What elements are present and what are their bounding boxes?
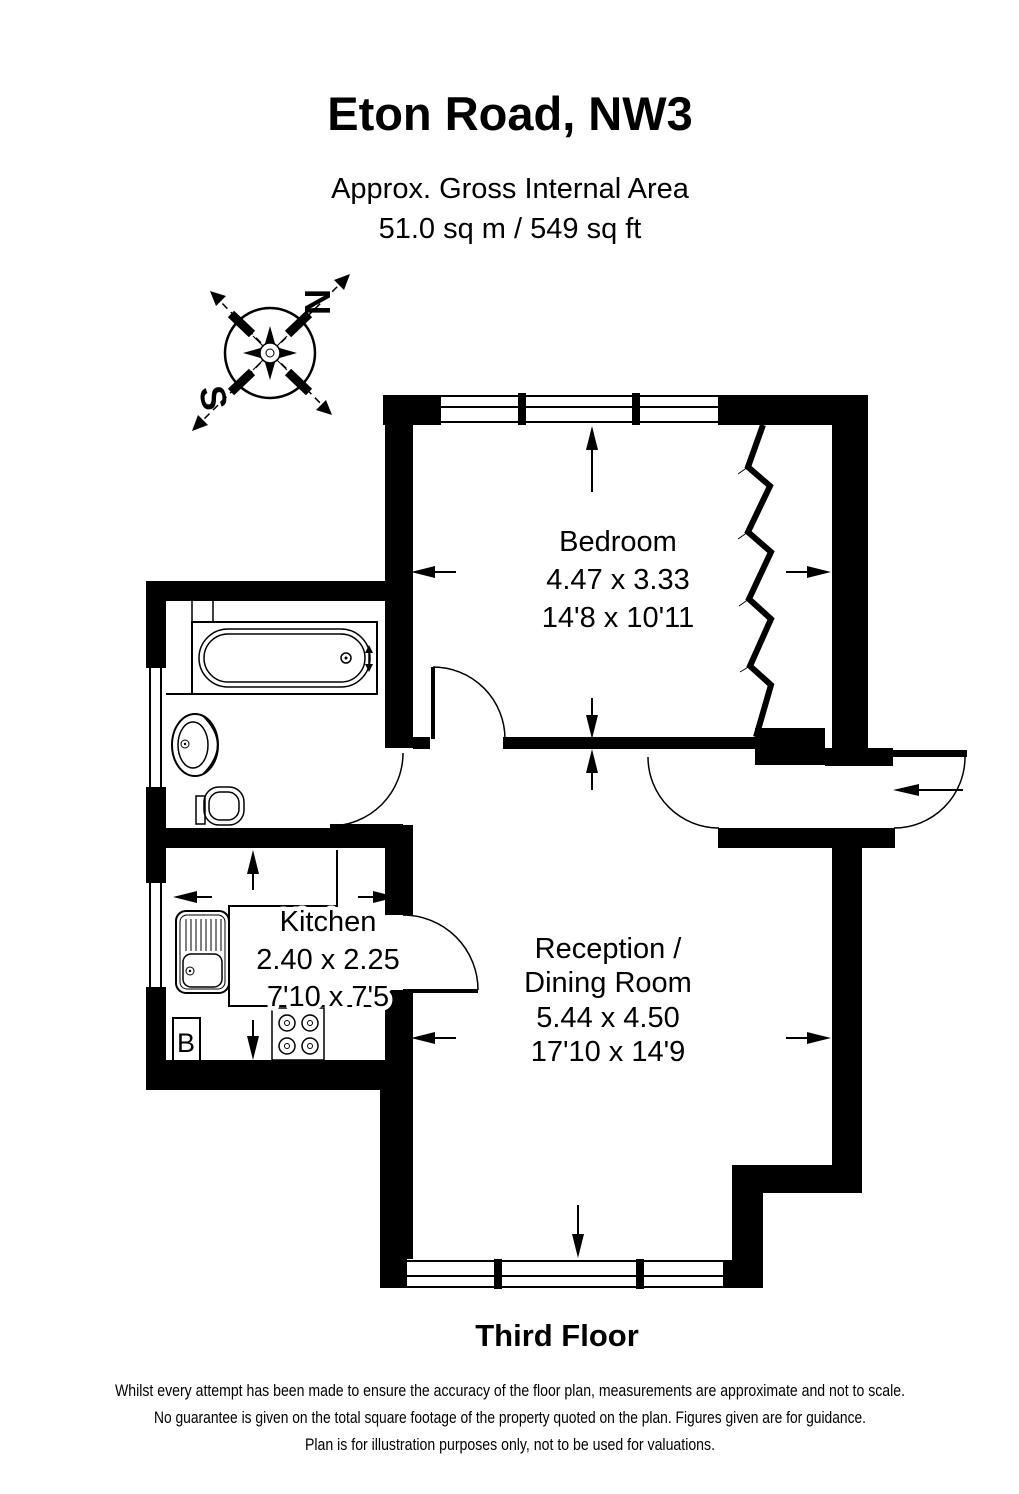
walls (146, 395, 967, 1288)
disclaimer-line-2: No guarantee is given on the total squar… (154, 1408, 866, 1427)
bedroom-window (441, 393, 718, 425)
bedroom-dims-metric: 4.47 x 3.33 (546, 564, 690, 596)
area-value: 51.0 sq m / 549 sq ft (379, 213, 642, 245)
bedroom-name: Bedroom (559, 526, 677, 558)
reception-dims-metric: 5.44 x 4.50 (536, 1002, 680, 1034)
reception-label: Reception / Dining Room 5.44 x 4.50 17'1… (524, 933, 692, 1068)
toilet-icon (196, 787, 244, 825)
floorplan-page: Eton Road, NW3 Approx. Gross Internal Ar… (0, 0, 1019, 1494)
hob-icon (272, 1008, 324, 1060)
reception-name-line2: Dining Room (524, 967, 692, 999)
reception-dims-imperial: 17'10 x 14'9 (531, 1036, 686, 1068)
compass-north-label: N (297, 289, 338, 315)
kitchen-dims-metric: 2.40 x 2.25 (256, 944, 400, 976)
kitchen-name: Kitchen (280, 906, 377, 938)
compass-south-label: S (191, 383, 236, 414)
kitchen-door (403, 915, 478, 991)
disclaimer-line-3: Plan is for illustration purposes only, … (305, 1435, 715, 1454)
floor-label: Third Floor (475, 1318, 639, 1353)
boiler-box: B (173, 1018, 200, 1062)
reception-window (407, 1259, 723, 1289)
area-subtitle: Approx. Gross Internal Area (331, 173, 690, 205)
boiler-label: B (177, 1028, 195, 1058)
bedroom-door (433, 667, 505, 739)
bedroom-label: Bedroom 4.47 x 3.33 14'8 x 10'11 (542, 526, 694, 634)
kitchen-label: Kitchen 2.40 x 2.25 7'10 x 7'5 (256, 906, 400, 1013)
basin-icon (172, 714, 218, 776)
compass-rose-icon: N S (191, 274, 350, 431)
page-title: Eton Road, NW3 (327, 87, 693, 140)
wardrobe-zigzag-icon (738, 425, 771, 737)
bathroom-window (145, 668, 167, 787)
kitchen-sink-icon (176, 911, 229, 993)
floorplan-drawing: Eton Road, NW3 Approx. Gross Internal Ar… (0, 0, 1019, 1494)
reception-name-line1: Reception / (535, 933, 683, 965)
kitchen-window (145, 883, 167, 987)
disclaimer-line-1: Whilst every attempt has been made to en… (115, 1381, 905, 1400)
bedroom-dims-imperial: 14'8 x 10'11 (542, 602, 694, 634)
bathroom-door (330, 753, 403, 826)
kitchen-dims-imperial: 7'10 x 7'5 (267, 981, 389, 1013)
bathtub-icon (166, 601, 377, 694)
